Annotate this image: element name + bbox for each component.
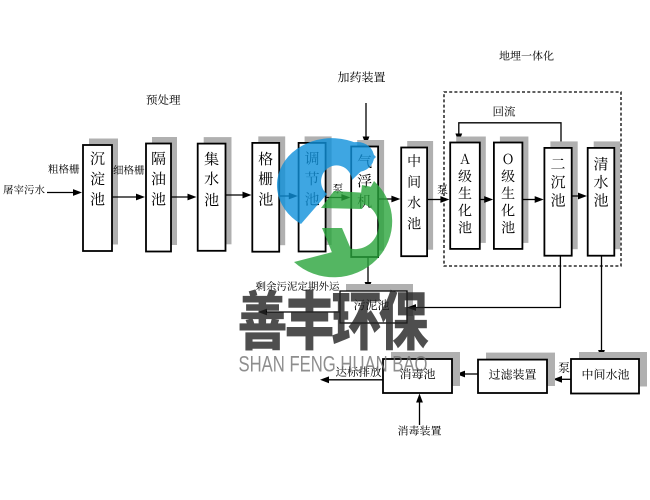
svg-text:SHAN FENG HUAN BAO: SHAN FENG HUAN BAO xyxy=(239,352,428,377)
